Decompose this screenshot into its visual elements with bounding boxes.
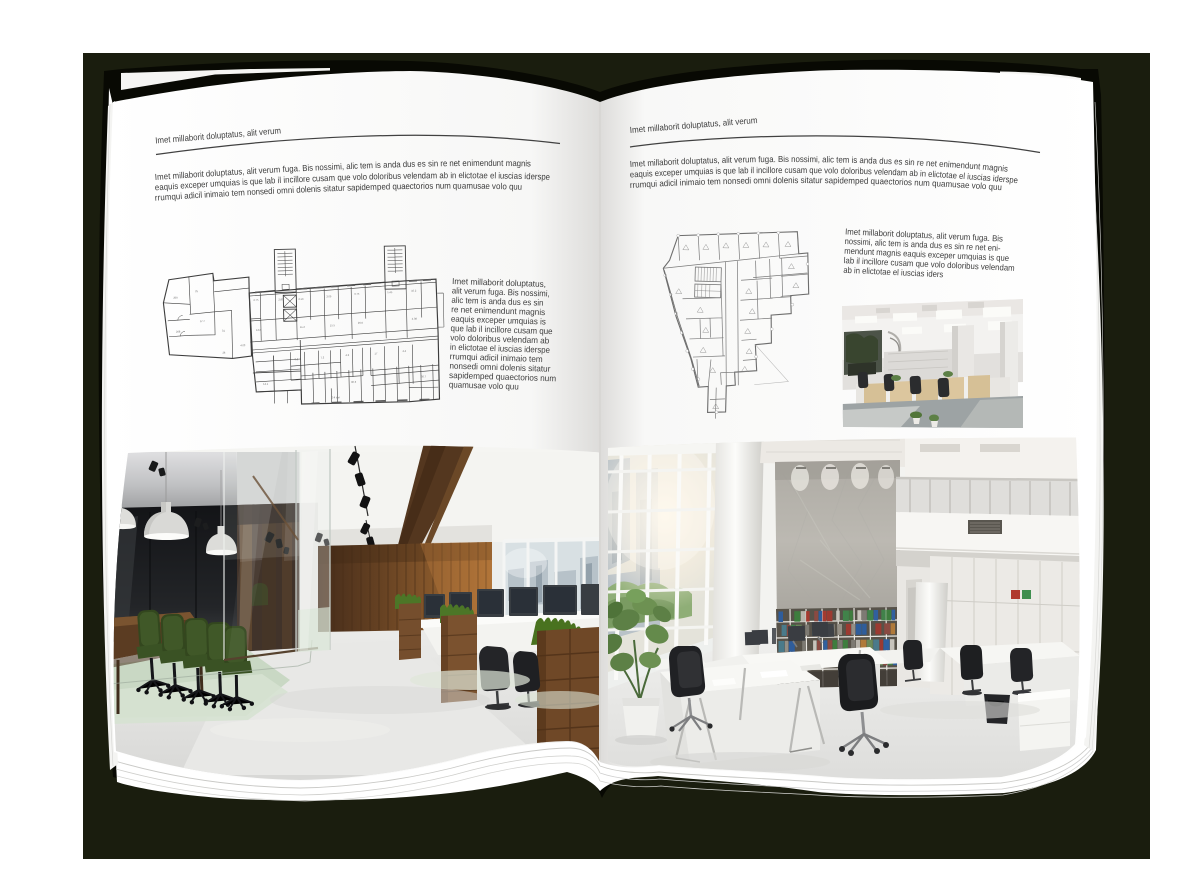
svg-text:12.8: 12.8 [256,328,262,332]
svg-text:4.03: 4.03 [240,343,246,347]
svg-text:2-й зал: 2-й зал [331,395,340,399]
svg-text:3.09: 3.09 [326,294,332,298]
svg-text:26.6: 26.6 [358,321,364,325]
svg-text:4.4: 4.4 [402,349,406,353]
svg-text:2.10: 2.10 [298,297,304,301]
svg-text:8.2: 8.2 [295,357,299,361]
svg-text:14.1: 14.1 [263,382,269,386]
svg-text:10.2: 10.2 [411,289,417,293]
svg-text:208: 208 [176,329,181,333]
svg-text:57.7: 57.7 [200,319,206,323]
svg-text:90.3: 90.3 [351,380,357,384]
svg-text:4.6: 4.6 [345,353,349,357]
svg-text:3.75: 3.75 [354,292,360,296]
svg-text:2.75: 2.75 [253,298,259,302]
svg-text:11.2: 11.2 [300,325,305,329]
svg-text:7.3: 7.3 [321,355,325,359]
svg-text:15.5: 15.5 [330,323,336,327]
svg-text:200: 200 [173,296,178,300]
svg-text:1.45: 1.45 [387,290,393,294]
svg-text:30.7: 30.7 [421,374,427,378]
svg-text:4.08: 4.08 [412,317,418,321]
svg-text:2.80: 2.80 [278,297,284,301]
